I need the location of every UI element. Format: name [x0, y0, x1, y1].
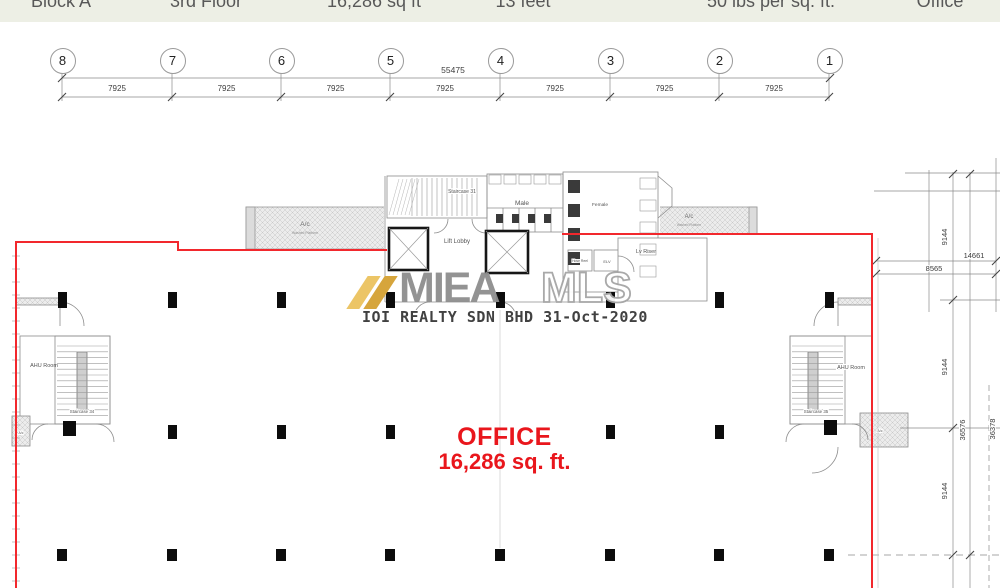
label-hose-reel: Hose Reel	[572, 259, 588, 263]
dim-seg2: 9144	[940, 359, 949, 376]
dim-seg3: 9144	[940, 483, 949, 500]
ledge-right-sublabel: Washed Platform	[677, 223, 702, 227]
column	[276, 549, 286, 561]
label-ahu-right: AHU Room	[837, 365, 865, 371]
column	[606, 425, 615, 439]
column	[825, 292, 834, 308]
bay-dim-label: 7925	[108, 84, 126, 93]
watermark-brand-outline: MLS	[541, 264, 632, 313]
dim-total: 36576	[958, 420, 967, 441]
column	[277, 292, 286, 308]
label-female-toilet: Female	[592, 202, 608, 208]
grid-bubble: 2	[707, 48, 733, 74]
spec-height: 13 feet	[495, 0, 550, 12]
label-staircase-34: Staircase 34	[70, 409, 95, 414]
ledge-right-label: A/c	[685, 214, 694, 220]
bay-dim-label: 7925	[218, 84, 236, 93]
column	[495, 549, 505, 561]
spec-block: Block A	[31, 0, 91, 12]
label-ahu-left: AHU Room	[30, 363, 58, 369]
right-wing	[786, 298, 908, 473]
column	[168, 425, 177, 439]
bay-dim-label: 7925	[546, 84, 564, 93]
dimension-arrow-ticks	[872, 170, 1000, 559]
column	[385, 549, 395, 561]
label-staircase-35: Staircase 35	[804, 409, 829, 414]
dim-outer-total: 36378	[988, 419, 997, 440]
spec-floor: 3rd Floor	[170, 0, 242, 12]
listing-spec-band: Block A 3rd Floor 16,286 sq ft 13 feet 5…	[0, 0, 1000, 22]
grid-bubble: 7	[160, 48, 186, 74]
column	[824, 549, 834, 561]
bay-dim-label: 7925	[436, 84, 454, 93]
office-size: 16,286 sq. ft.	[412, 450, 597, 474]
ledge-left-label: A/c	[300, 221, 310, 228]
office-title: OFFICE	[412, 424, 597, 450]
column	[824, 420, 837, 435]
spec-size: 16,286 sq ft	[327, 0, 421, 12]
grid-bubble: 3	[598, 48, 624, 74]
watermark-footer: IOI REALTY SDN BHD 31-Oct-2020	[362, 308, 648, 326]
column	[386, 292, 395, 308]
column	[167, 549, 177, 561]
column	[386, 425, 395, 439]
ledge-left-sublabel: Washed Platform	[292, 231, 318, 235]
column	[58, 292, 67, 308]
overall-dimension-label: 55475	[441, 65, 465, 75]
label-staircase-31: Staircase 31	[448, 189, 476, 195]
column	[277, 425, 286, 439]
column	[168, 292, 177, 308]
column	[57, 549, 67, 561]
column	[715, 292, 724, 308]
column	[63, 421, 76, 436]
dim-seg1: 9144	[940, 229, 949, 246]
grid-bubble: 8	[50, 48, 76, 74]
dim-offset-b: 8565	[926, 264, 943, 273]
label-ac-left: A/c	[19, 431, 24, 435]
column	[715, 425, 724, 439]
bay-dimension-labels: 7925792579257925792579257925	[108, 84, 783, 93]
bay-dim-label: 7925	[327, 84, 345, 93]
label-lv-riser: Lv Riser	[636, 249, 656, 255]
grid-bubble: 6	[269, 48, 295, 74]
spec-loading: 50 lbs per sq. ft.	[707, 0, 835, 12]
office-area-label: OFFICE 16,286 sq. ft.	[412, 424, 597, 474]
grid-bubble: 1	[817, 48, 843, 74]
dim-offset-a: 14661	[964, 251, 985, 260]
label-male-toilet: Male	[515, 200, 529, 207]
column	[605, 549, 615, 561]
floorplan-page: 55475 7925792579257925792579257925 A/c W…	[0, 0, 1000, 588]
column	[714, 549, 724, 561]
bay-dim-label: 7925	[765, 84, 783, 93]
bay-dim-label: 7925	[656, 84, 674, 93]
watermark-brand-bold: MIEA	[399, 264, 499, 313]
grid-bubble: 5	[378, 48, 404, 74]
label-lift-lobby: Lift Lobby	[444, 239, 470, 245]
grid-bubble: 4	[488, 48, 514, 74]
spec-type: Office	[917, 0, 964, 12]
